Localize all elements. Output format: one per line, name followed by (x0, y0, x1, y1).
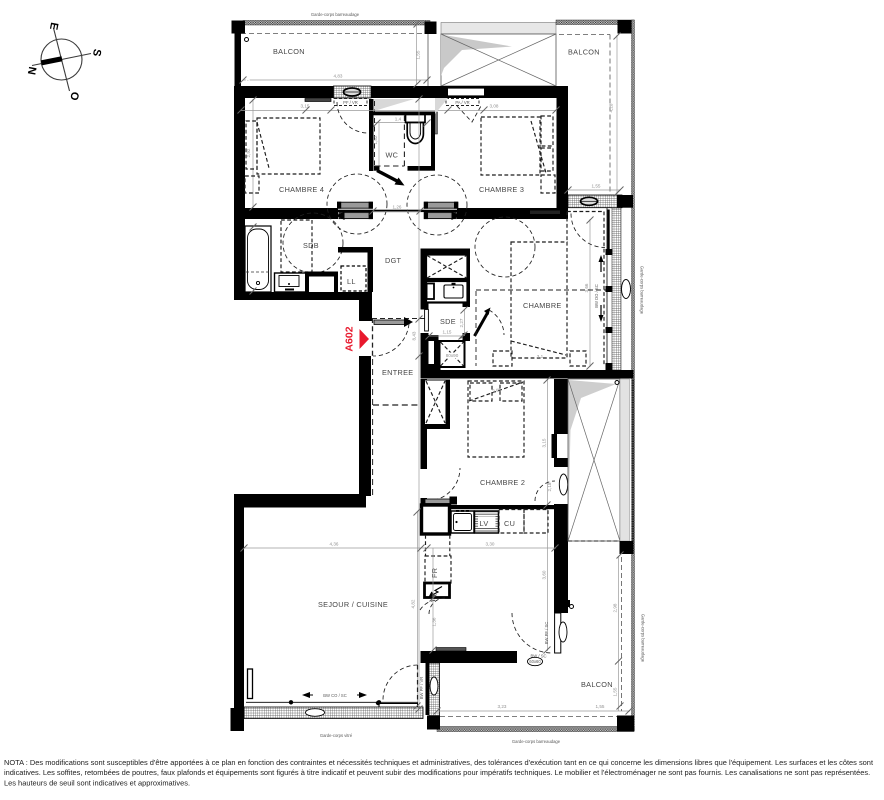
svg-text:4,28: 4,28 (609, 103, 614, 112)
svg-text:PA / VR: PA / VR (455, 100, 469, 105)
svg-text:WC: WC (386, 151, 399, 160)
svg-text:2,98: 2,98 (613, 603, 618, 612)
svg-text:NOTA : Des modifications sont: NOTA : Des modifications sont susceptibl… (4, 758, 874, 767)
svg-text:1,4: 1,4 (395, 117, 402, 122)
svg-text:1,55: 1,55 (416, 50, 421, 59)
svg-text:CHAMBRE 4: CHAMBRE 4 (279, 185, 324, 194)
svg-text:Garde-corps vitré: Garde-corps vitré (320, 733, 353, 738)
svg-text:60x60: 60x60 (529, 659, 541, 664)
svg-text:BW PF / VR: BW PF / VR (419, 677, 424, 700)
svg-text:3,66: 3,66 (584, 283, 589, 292)
svg-text:3,60: 3,60 (542, 570, 547, 579)
svg-text:indicatives. Les soffites, ret: indicatives. Les soffites, retombées de … (4, 768, 870, 777)
svg-text:3,08: 3,08 (490, 104, 499, 109)
svg-text:1,26: 1,26 (393, 205, 402, 210)
svg-text:4,36: 4,36 (330, 542, 339, 547)
svg-text:Garde-corps barreaudage: Garde-corps barreaudage (311, 12, 360, 17)
svg-text:BALCON: BALCON (568, 48, 600, 57)
svg-text:LL: LL (347, 277, 356, 286)
svg-text:80x90: 80x90 (446, 353, 459, 358)
svg-text:SEJOUR / CUISINE: SEJOUR / CUISINE (318, 600, 388, 609)
svg-text:3,23: 3,23 (498, 704, 507, 709)
svg-text:BW DO / SC: BW DO / SC (594, 284, 599, 308)
svg-text:LV: LV (480, 519, 489, 528)
svg-text:4,82: 4,82 (411, 599, 416, 608)
svg-text:BW PF / SC: BW PF / SC (544, 622, 549, 645)
svg-text:BW CO / SC: BW CO / SC (323, 693, 347, 698)
svg-text:1,15: 1,15 (443, 330, 452, 335)
svg-text:1,55: 1,55 (596, 704, 605, 709)
svg-text:SDB: SDB (303, 241, 319, 250)
svg-text:CHAMBRE: CHAMBRE (523, 301, 562, 310)
svg-text:2,27: 2,27 (459, 318, 464, 327)
svg-text:Garde-corps barreaudage: Garde-corps barreaudage (512, 739, 561, 744)
svg-text:CU: CU (504, 519, 515, 528)
svg-text:3,1: 3,1 (537, 354, 544, 359)
svg-text:3,30: 3,30 (486, 542, 495, 547)
svg-text:8,43: 8,43 (412, 331, 417, 340)
svg-text:Les hauteurs de seuil sont ind: Les hauteurs de seuil sont indicatives e… (4, 779, 190, 788)
svg-text:DGT: DGT (385, 256, 402, 265)
svg-text:1,36: 1,36 (432, 617, 437, 626)
svg-text:ENTREE: ENTREE (382, 368, 413, 377)
svg-text:1,52: 1,52 (373, 135, 378, 144)
svg-text:FR: FR (430, 568, 439, 578)
svg-text:1,55: 1,55 (613, 687, 618, 696)
svg-text:SDE: SDE (440, 317, 456, 326)
svg-text:1,55: 1,55 (592, 184, 601, 189)
svg-text:CHAMBRE 3: CHAMBRE 3 (479, 185, 524, 194)
svg-text:Garde-corps barreaudage: Garde-corps barreaudage (641, 614, 646, 663)
svg-text:2,18: 2,18 (547, 482, 552, 491)
svg-text:3,15: 3,15 (542, 438, 547, 447)
svg-text:PF / VR: PF / VR (343, 100, 358, 105)
svg-text:A602: A602 (344, 326, 356, 351)
svg-text:BALCON: BALCON (273, 47, 305, 56)
svg-text:4,83: 4,83 (334, 74, 343, 79)
svg-text:2,92: 2,92 (246, 148, 251, 157)
svg-text:Garde-corps barreaudage: Garde-corps barreaudage (640, 266, 645, 315)
svg-text:BALCON: BALCON (581, 680, 613, 689)
svg-text:CHAMBRE 2: CHAMBRE 2 (480, 478, 525, 487)
